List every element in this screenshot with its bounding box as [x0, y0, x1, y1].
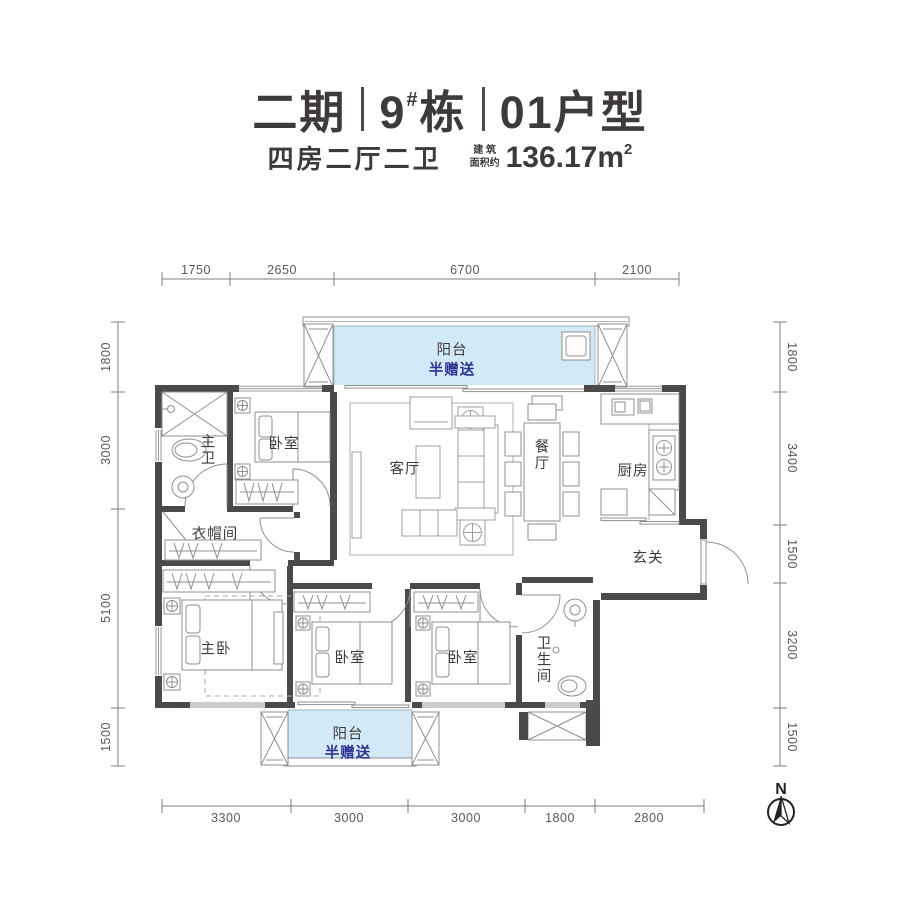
bedroom-mid-furniture	[294, 592, 392, 696]
dim-right-4: 1500	[785, 722, 799, 752]
slider-leaf	[352, 705, 409, 708]
dim-right-1: 3400	[785, 443, 799, 473]
dim-bottom-2: 3000	[451, 811, 481, 825]
label-bedroom-top: 卧室	[269, 433, 300, 454]
label-bathroom: 卫生间	[533, 635, 554, 685]
dim-right-3: 3200	[785, 630, 799, 660]
entry-door	[700, 539, 748, 585]
bathroom-fixtures	[553, 599, 586, 696]
dim-left-0: 1800	[99, 342, 113, 372]
label-master-bedroom: 主卧	[201, 638, 232, 659]
label-kitchen: 厨房	[618, 460, 649, 481]
label-bedroom-right: 卧室	[448, 647, 479, 668]
floor-plan-drawing	[0, 0, 900, 899]
bedroom-right-furniture	[414, 592, 510, 696]
label-balcony-bottom: 阳台	[333, 723, 364, 744]
dim-right-0: 1800	[785, 342, 799, 372]
dim-right-2: 1500	[785, 539, 799, 569]
label-balcony-top-note: 半赠送	[429, 359, 476, 380]
kitchen-furniture	[601, 394, 679, 520]
label-cloakroom: 衣帽间	[192, 523, 239, 544]
dim-top-2: 6700	[450, 263, 480, 277]
label-balcony-top: 阳台	[437, 339, 468, 360]
label-balcony-bottom-note: 半赠送	[325, 742, 372, 763]
north-compass	[768, 796, 794, 825]
dim-bottom-0: 3300	[211, 811, 241, 825]
label-bedroom-mid: 卧室	[335, 647, 366, 668]
dim-bottom-3: 1800	[545, 811, 575, 825]
dim-top-3: 2100	[622, 263, 652, 277]
kitchen-slider	[640, 522, 679, 525]
label-living-room: 客厅	[390, 458, 421, 479]
dim-top-0: 1750	[181, 263, 211, 277]
label-master-bath: 主卫	[197, 434, 218, 467]
dim-bottom-4: 2800	[634, 811, 664, 825]
kitchen-slider	[601, 518, 646, 521]
dim-top-1: 2650	[267, 263, 297, 277]
label-dining-room: 餐厅	[531, 439, 552, 472]
dim-left-2: 5100	[99, 593, 113, 623]
label-foyer: 玄关	[633, 547, 664, 568]
dim-bottom-1: 3000	[334, 811, 364, 825]
north-label: N	[775, 781, 787, 799]
floorplan-page: 二期 9#栋 01户型 四房二厅二卫 建 筑 面积约 136.17m2	[0, 0, 900, 899]
slider-leaf	[298, 702, 355, 705]
living-room-furniture	[350, 397, 513, 555]
dim-left-3: 1500	[99, 722, 113, 752]
dim-left-1: 3000	[99, 435, 113, 465]
